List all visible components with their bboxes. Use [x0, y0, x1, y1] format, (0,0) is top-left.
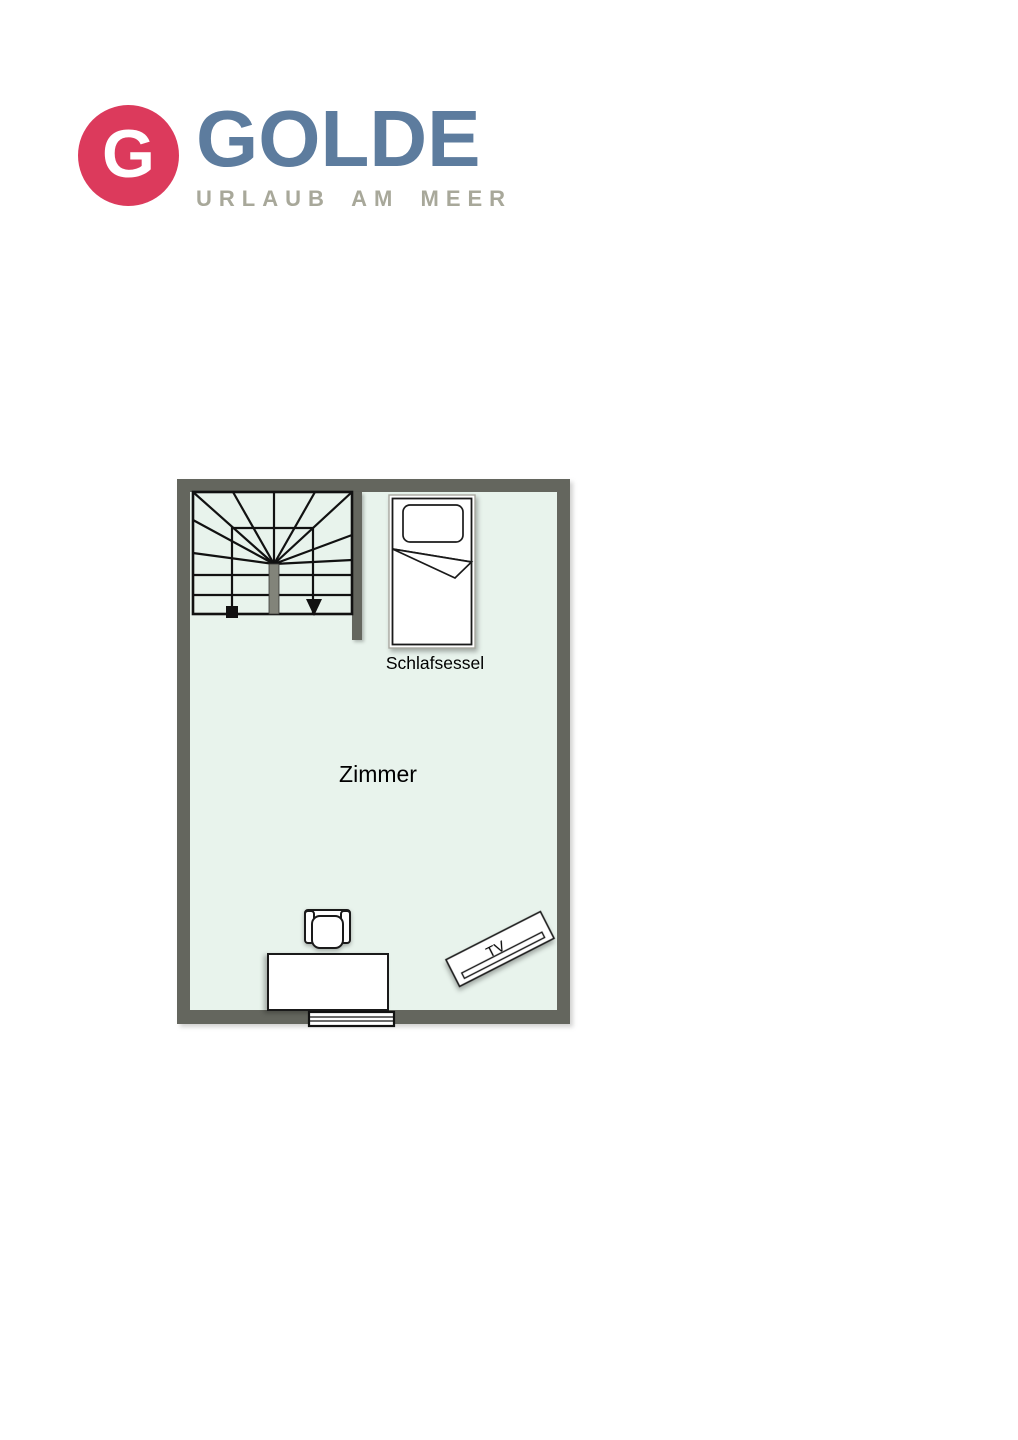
logo-badge-circle: G	[78, 105, 179, 206]
chair-seat	[312, 916, 343, 948]
logo-brand-text: GOLDE	[196, 99, 512, 179]
interior-wall-stub	[352, 492, 362, 640]
stair-newel	[269, 564, 279, 614]
room-label: Zimmer	[339, 761, 417, 787]
desk	[268, 954, 388, 1010]
logo-tagline-text: URLAUB AM MEER	[196, 186, 512, 212]
logo-text-block: GOLDE URLAUB AM MEER	[196, 105, 512, 212]
desk-chair	[305, 910, 350, 948]
floorplan: TV Schlafsessel Zimmer	[177, 479, 570, 1024]
window	[309, 1012, 394, 1026]
bed-pillow	[403, 505, 463, 542]
sleeping-chair	[389, 495, 475, 648]
desk-top	[268, 954, 388, 1010]
logo-monogram: G	[102, 120, 155, 188]
stair-entry-marker	[226, 606, 238, 618]
window-frame	[309, 1012, 394, 1026]
page: G GOLDE URLAUB AM MEER	[0, 0, 1018, 1440]
logo: G GOLDE URLAUB AM MEER	[78, 105, 512, 212]
sleeping-chair-label: Schlafsessel	[386, 653, 484, 673]
